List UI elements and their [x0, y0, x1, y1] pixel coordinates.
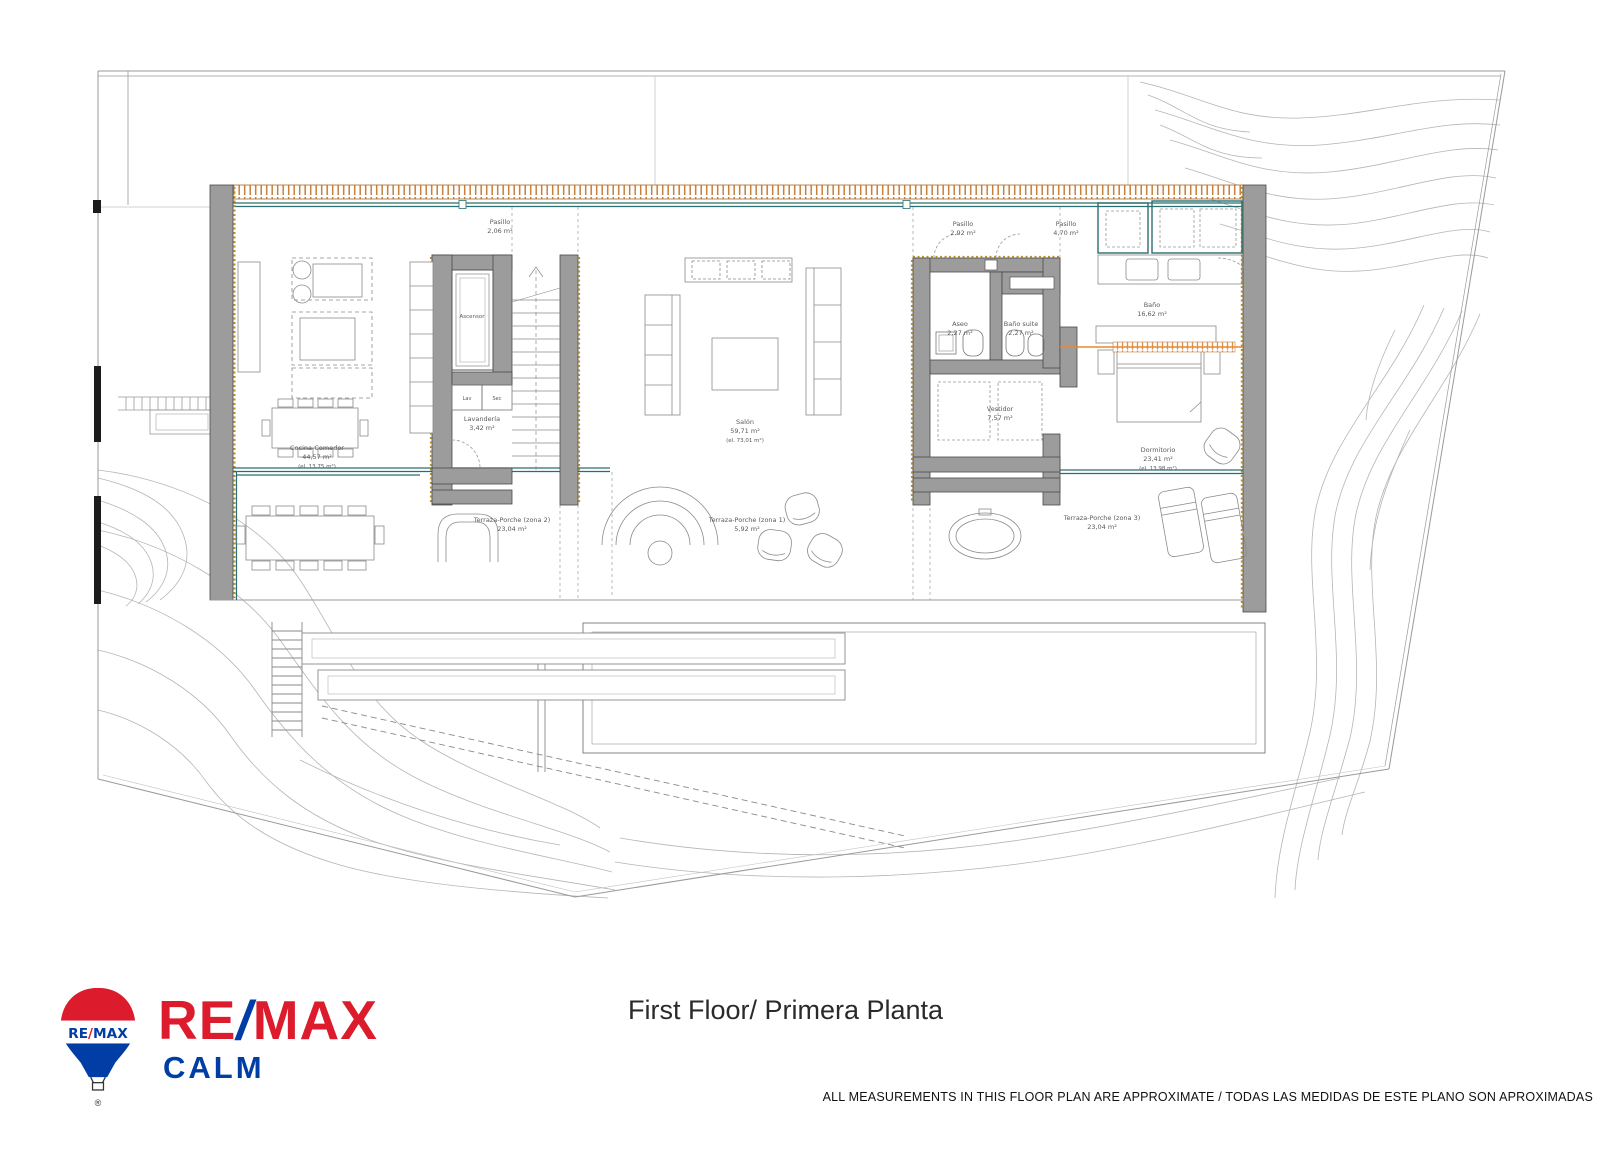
- boundary-wall-segments: [93, 200, 101, 604]
- remax-office-name: CALM: [163, 1050, 378, 1086]
- kitchen-dining-furniture: [238, 258, 372, 457]
- label-pasillo3: Pasillo: [1056, 220, 1076, 228]
- bed: [1117, 350, 1201, 422]
- dining-table: [272, 408, 358, 448]
- svg-text:7,57 m²: 7,57 m²: [987, 414, 1013, 422]
- svg-text:23,41 m²: 23,41 m²: [1143, 455, 1173, 463]
- sun-lounger-2: [1201, 492, 1248, 563]
- sun-lounger-1: [1158, 486, 1205, 557]
- coffee-table: [712, 338, 778, 390]
- label-pasillo2: Pasillo: [953, 220, 973, 228]
- label-terraza2: Terraza-Porche (zona 2): [473, 516, 551, 524]
- contours-right: [1275, 305, 1480, 898]
- svg-text:(el. 13,75 m²): (el. 13,75 m²): [298, 463, 336, 470]
- spa-oval: [949, 509, 1021, 559]
- svg-text:23,04 m²: 23,04 m²: [497, 525, 527, 533]
- floor-plan-page: Pasillo 2,06 m² Pasillo 2,92 m² Pasillo …: [0, 0, 1600, 1153]
- label-terraza3: Terraza-Porche (zona 3): [1063, 514, 1141, 522]
- armchair: [1200, 424, 1245, 469]
- label-ascensor: Ascensor: [459, 314, 485, 320]
- exterior-stair: [118, 397, 214, 434]
- outdoor-dining-table: [246, 516, 374, 560]
- label-bano-suite: Baño suite: [1004, 320, 1038, 328]
- label-terraza1: Terraza-Porche (zona 1): [708, 516, 786, 524]
- wall-left: [210, 185, 233, 600]
- remax-wordmark: RE/MAX: [158, 992, 378, 1050]
- lower-terrace-structures: [272, 622, 1265, 848]
- label-lavanderia: Lavandería: [464, 415, 500, 423]
- svg-text:2,06 m²: 2,06 m²: [487, 227, 513, 235]
- svg-text:(el. 73,01 m²): (el. 73,01 m²): [726, 437, 764, 444]
- balloon-text: RE/MAX: [68, 1026, 128, 1042]
- label-salon: Salón: [736, 418, 754, 426]
- measurements-disclaimer: ALL MEASUREMENTS IN THIS FLOOR PLAN ARE …: [823, 1090, 1593, 1104]
- bedroom: [1060, 201, 1258, 468]
- remax-logo: RE/MAX ® RE/MAX CALM: [52, 986, 378, 1108]
- svg-text:3,42 m²: 3,42 m²: [469, 424, 495, 432]
- label-sec: Sec: [493, 396, 502, 402]
- living-room-furniture: [645, 258, 841, 415]
- svg-text:23,04 m²: 23,04 m²: [1087, 523, 1117, 531]
- svg-text:(el. 13,98 m²): (el. 13,98 m²): [1139, 465, 1177, 472]
- laundry: [452, 385, 512, 410]
- remax-balloon-icon: RE/MAX: [52, 986, 144, 1100]
- svg-text:2,92 m²: 2,92 m²: [950, 229, 976, 237]
- elevator-shaft: [452, 270, 493, 370]
- svg-text:2,27 m²: 2,27 m²: [947, 329, 973, 337]
- glazing-top: [233, 203, 1243, 207]
- label-bano: Baño: [1144, 301, 1161, 309]
- stairs: [512, 267, 560, 470]
- svg-text:44,57 m²: 44,57 m²: [302, 453, 332, 461]
- sofa-right: [806, 268, 841, 415]
- kitchen-shelving: [410, 262, 433, 433]
- label-aseo: Aseo: [952, 320, 968, 328]
- label-vestidor: Vestidor: [987, 405, 1014, 413]
- wall-right: [1243, 185, 1266, 612]
- svg-text:5,92 m²: 5,92 m²: [734, 525, 760, 533]
- contours-top-right: [1140, 82, 1500, 271]
- trademark-symbol: ®: [95, 1098, 102, 1108]
- label-pasillo1: Pasillo: [490, 218, 510, 226]
- headboard: [1096, 326, 1216, 343]
- label-cocina: Cocina-Comedor: [290, 444, 344, 452]
- curved-sofa: [602, 487, 718, 565]
- floor-plan-drawing: Pasillo 2,06 m² Pasillo 2,92 m² Pasillo …: [0, 0, 1600, 1153]
- label-lav: Lav: [463, 396, 472, 402]
- building-shell: [210, 185, 1266, 612]
- roof-hatch-band: [233, 185, 1243, 199]
- svg-text:4,70 m²: 4,70 m²: [1053, 229, 1079, 237]
- page-title: First Floor/ Primera Planta: [628, 995, 943, 1026]
- svg-text:16,62 m²: 16,62 m²: [1137, 310, 1167, 318]
- svg-text:59,71 m²: 59,71 m²: [730, 427, 760, 435]
- label-dormitorio: Dormitorio: [1141, 446, 1176, 454]
- svg-text:2,27 m²: 2,27 m²: [1008, 329, 1034, 337]
- core-bathrooms: [912, 234, 1077, 505]
